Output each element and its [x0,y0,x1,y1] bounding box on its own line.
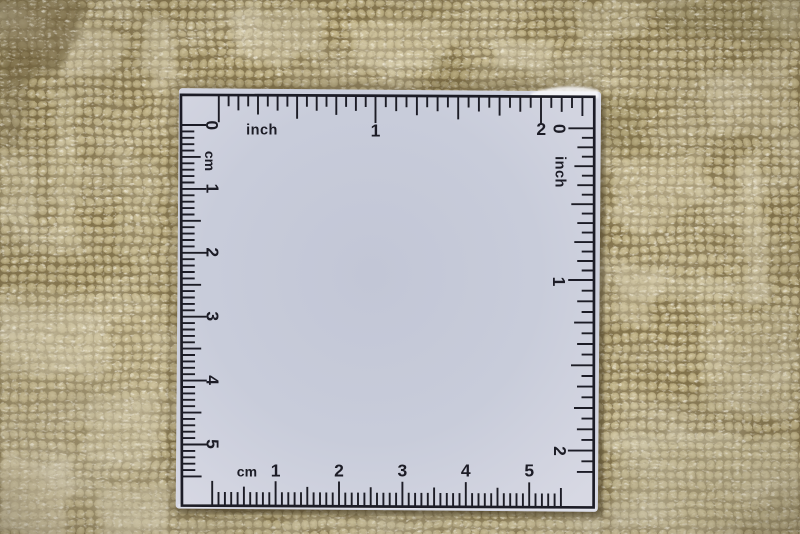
svg-text:0: 0 [202,120,222,130]
svg-text:4: 4 [461,461,471,481]
svg-text:3: 3 [398,461,408,481]
svg-text:2: 2 [550,446,570,456]
svg-text:2: 2 [334,461,344,481]
svg-text:1: 1 [549,277,569,287]
svg-text:inch: inch [246,123,278,139]
svg-text:2: 2 [203,247,223,257]
svg-text:cm: cm [202,151,218,171]
svg-text:cm: cm [237,463,257,479]
svg-text:5: 5 [203,439,223,449]
svg-text:3: 3 [203,311,223,321]
svg-text:1: 1 [371,121,381,141]
svg-text:inch: inch [552,156,568,188]
svg-text:5: 5 [524,461,534,481]
svg-text:2: 2 [536,119,546,139]
svg-text:1: 1 [203,184,223,194]
svg-text:1: 1 [271,461,281,481]
svg-text:0: 0 [550,124,570,134]
svg-text:4: 4 [203,375,223,385]
